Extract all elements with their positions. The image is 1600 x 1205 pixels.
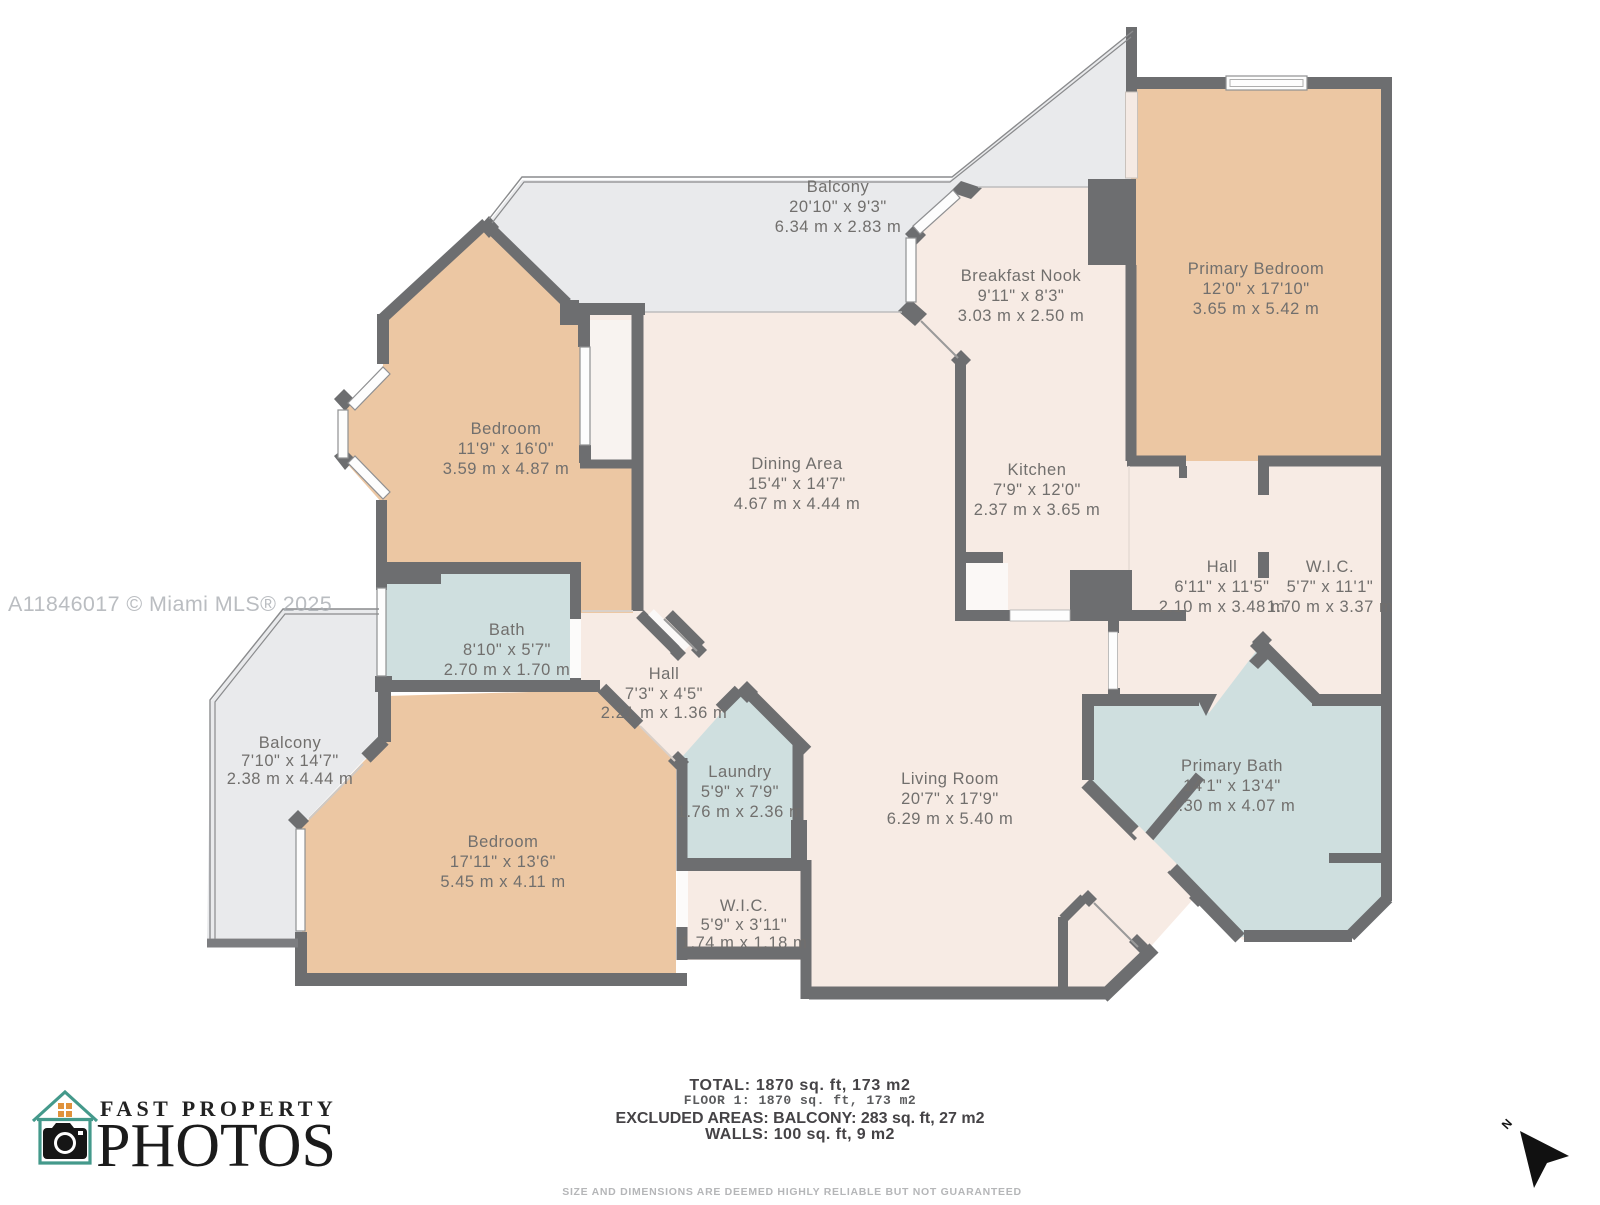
svg-text:3.03 m x 2.50 m: 3.03 m x 2.50 m: [958, 307, 1085, 325]
svg-text:EXCLUDED AREAS: BALCONY: 283 s: EXCLUDED AREAS: BALCONY: 283 sq. ft, 27 …: [616, 1110, 985, 1127]
svg-text:7'10" x 14'7": 7'10" x 14'7": [241, 752, 339, 770]
svg-text:20'10" x 9'3": 20'10" x 9'3": [789, 198, 887, 216]
svg-text:Balcony: Balcony: [259, 734, 322, 752]
svg-text:Primary Bedroom: Primary Bedroom: [1188, 260, 1325, 278]
svg-text:2.37 m x 3.65 m: 2.37 m x 3.65 m: [974, 501, 1101, 519]
svg-text:Living Room: Living Room: [901, 770, 999, 788]
svg-text:5'9" x 7'9": 5'9" x 7'9": [701, 783, 779, 801]
svg-text:WALLS: 100 sq. ft, 9 m2: WALLS: 100 sq. ft, 9 m2: [705, 1126, 895, 1143]
svg-text:Dining Area: Dining Area: [751, 455, 843, 473]
svg-text:8'10" x 5'7": 8'10" x 5'7": [463, 641, 551, 659]
svg-text:3.65 m x 5.42 m: 3.65 m x 5.42 m: [1193, 300, 1320, 318]
svg-text:Bath: Bath: [489, 621, 525, 639]
svg-text:15'4" x 14'7": 15'4" x 14'7": [748, 475, 846, 493]
svg-text:2.38 m x 4.44 m: 2.38 m x 4.44 m: [227, 770, 354, 788]
svg-text:2.70 m x 1.70 m: 2.70 m x 1.70 m: [444, 661, 571, 679]
svg-text:3.59 m x 4.87 m: 3.59 m x 4.87 m: [443, 460, 570, 478]
svg-text:4.30 m x 4.07 m: 4.30 m x 4.07 m: [1169, 797, 1296, 815]
svg-text:4.67 m x 4.44 m: 4.67 m x 4.44 m: [734, 495, 861, 513]
svg-text:Balcony: Balcony: [807, 178, 870, 196]
svg-text:PHOTOS: PHOTOS: [96, 1112, 336, 1180]
svg-text:W.I.C.: W.I.C.: [720, 897, 768, 915]
svg-text:17'11" x 13'6": 17'11" x 13'6": [450, 853, 556, 871]
svg-text:Hall: Hall: [649, 665, 680, 683]
svg-text:Bedroom: Bedroom: [471, 420, 542, 438]
svg-text:7'9" x 12'0": 7'9" x 12'0": [993, 481, 1081, 499]
svg-text:6.34 m x 2.83 m: 6.34 m x 2.83 m: [775, 218, 902, 236]
svg-text:20'7" x 17'9": 20'7" x 17'9": [901, 790, 999, 808]
svg-text:5'9" x 3'11": 5'9" x 3'11": [701, 916, 788, 934]
svg-text:9'11" x 8'3": 9'11" x 8'3": [978, 287, 1065, 305]
svg-text:1.76 m x 2.36 m: 1.76 m x 2.36 m: [677, 803, 804, 821]
svg-text:5.45 m x 4.11 m: 5.45 m x 4.11 m: [440, 873, 565, 891]
svg-text:TOTAL: 1870 sq. ft, 173 m2: TOTAL: 1870 sq. ft, 173 m2: [689, 1077, 910, 1094]
svg-text:5'7" x 11'1": 5'7" x 11'1": [1287, 578, 1374, 596]
svg-text:Primary Bath: Primary Bath: [1181, 757, 1283, 775]
svg-text:14'1" x 13'4": 14'1" x 13'4": [1183, 777, 1281, 795]
svg-text:11'9" x 16'0": 11'9" x 16'0": [458, 440, 554, 458]
svg-text:7'3" x 4'5": 7'3" x 4'5": [625, 685, 703, 703]
svg-text:6.29 m x 5.40 m: 6.29 m x 5.40 m: [887, 810, 1014, 828]
svg-text:FLOOR 1: 1870 sq. ft, 173 m2: FLOOR 1: 1870 sq. ft, 173 m2: [684, 1093, 916, 1108]
svg-text:12'0" x 17'10": 12'0" x 17'10": [1202, 280, 1309, 298]
svg-text:Bedroom: Bedroom: [468, 833, 539, 851]
svg-text:SIZE AND DIMENSIONS ARE DEEMED: SIZE AND DIMENSIONS ARE DEEMED HIGHLY RE…: [562, 1186, 1022, 1198]
svg-text:Kitchen: Kitchen: [1008, 461, 1067, 479]
svg-text:W.I.C.: W.I.C.: [1306, 558, 1354, 576]
svg-text:Laundry: Laundry: [708, 763, 772, 781]
svg-text:Hall: Hall: [1207, 558, 1238, 576]
svg-text:Breakfast Nook: Breakfast Nook: [961, 267, 1082, 285]
svg-text:2.21 m x 1.36 m: 2.21 m x 1.36 m: [601, 704, 728, 722]
svg-text:1.70 m x 3.37 m: 1.70 m x 3.37 m: [1267, 598, 1394, 616]
svg-text:1.74 m x 1.18 m: 1.74 m x 1.18 m: [681, 934, 808, 952]
svg-text:A11846017 © Miami MLS® 2025: A11846017 © Miami MLS® 2025: [8, 592, 332, 616]
svg-text:6'11" x 11'5": 6'11" x 11'5": [1174, 578, 1269, 596]
